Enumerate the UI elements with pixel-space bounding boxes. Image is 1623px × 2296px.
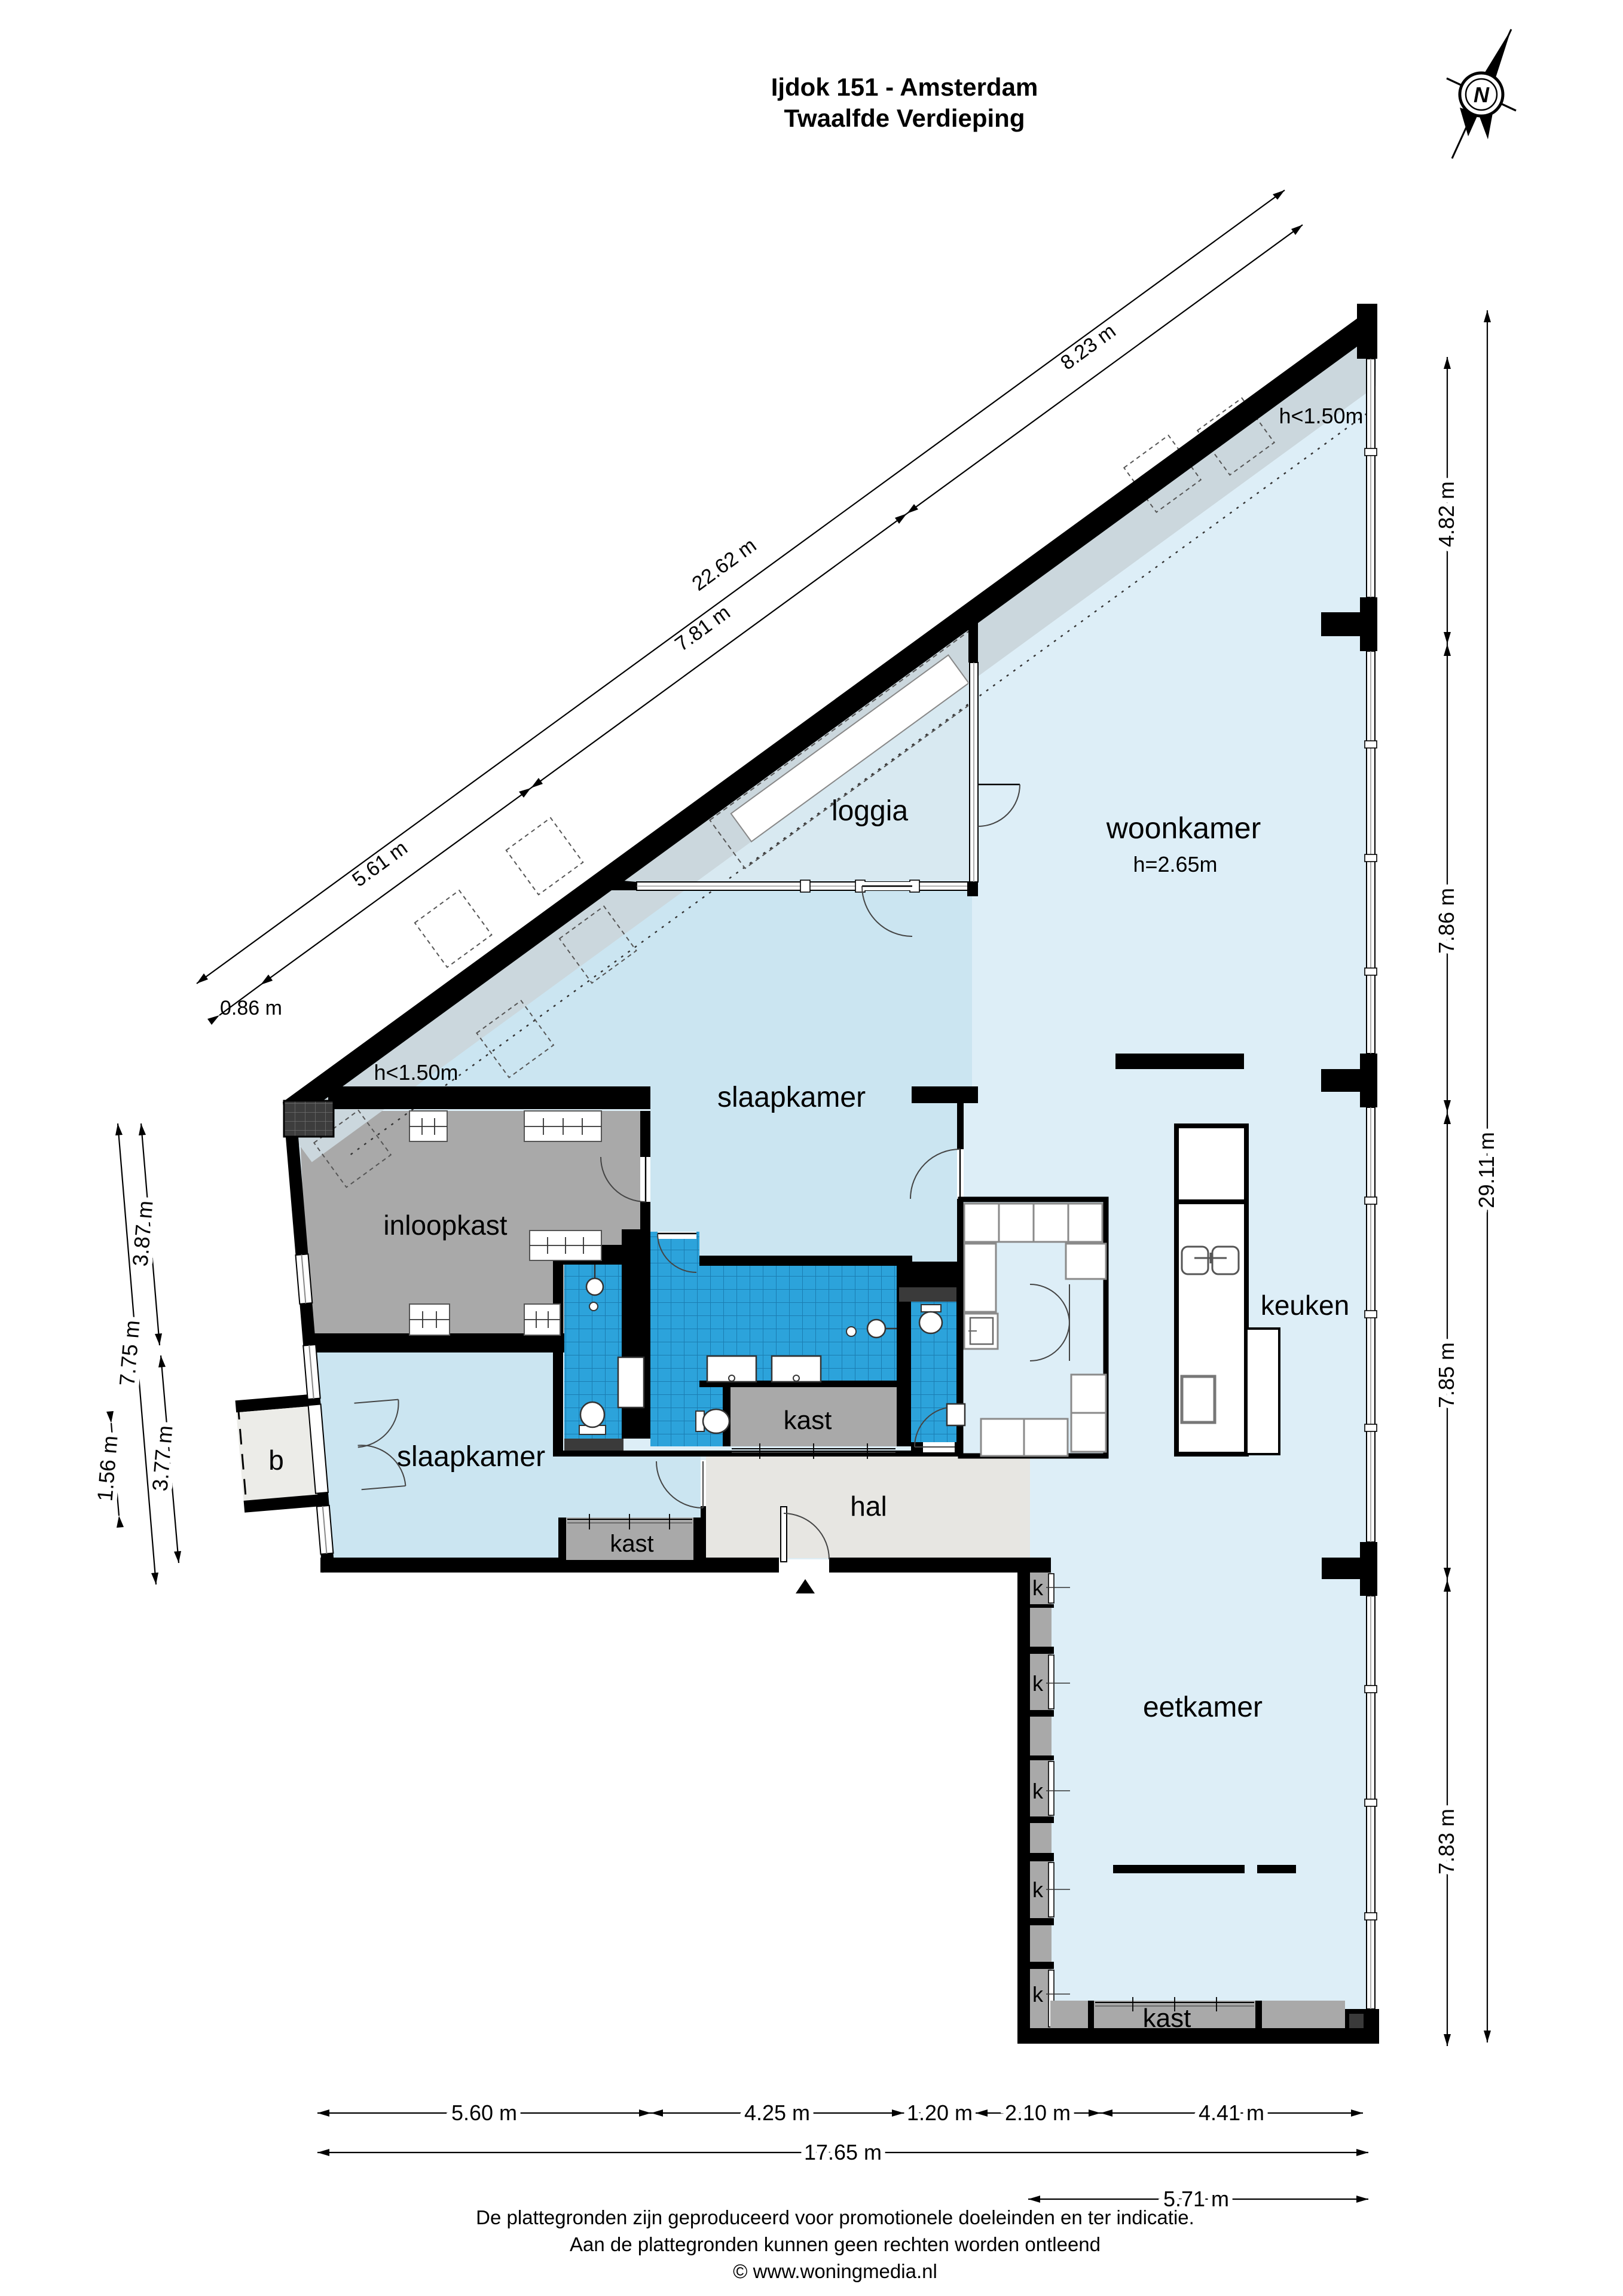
svg-text:kast: kast [610,1531,653,1557]
svg-text:k: k [1032,1982,1044,2007]
svg-text:woonkamer: woonkamer [1106,811,1261,845]
svg-text:Aan de plattegronden kunnen ge: Aan de plattegronden kunnen geen rechten… [570,2233,1101,2255]
svg-text:© www.woningmedia.nl: © www.woningmedia.nl [733,2260,937,2282]
svg-text:k: k [1032,1779,1044,1803]
svg-text:2.10 m: 2.10 m [1005,2100,1071,2125]
svg-text:1.20 m: 1.20 m [907,2100,973,2125]
svg-text:De plattegronden zijn geproduc: De plattegronden zijn geproduceerd voor … [476,2206,1194,2228]
svg-text:4.25 m: 4.25 m [744,2100,810,2125]
svg-text:17.65 m: 17.65 m [804,2140,882,2164]
svg-text:0.86 m: 0.86 m [220,997,282,1019]
svg-text:h<1.50m: h<1.50m [374,1060,458,1085]
svg-text:slaapkamer: slaapkamer [717,1082,866,1113]
svg-text:inloopkast: inloopkast [383,1210,507,1241]
svg-text:Ijdok 151 - Amsterdam: Ijdok 151 - Amsterdam [771,73,1038,101]
svg-text:hal: hal [850,1491,887,1522]
svg-text:kast: kast [1143,2004,1191,2033]
svg-text:N: N [1474,83,1490,107]
svg-text:b: b [268,1445,284,1476]
svg-text:h<1.50m: h<1.50m [1279,404,1363,428]
svg-text:4.41 m: 4.41 m [1199,2100,1264,2125]
svg-text:loggia: loggia [832,795,908,827]
svg-text:eetkamer: eetkamer [1143,1692,1263,1723]
svg-text:5.60 m: 5.60 m [451,2100,517,2125]
svg-text:29.11 m: 29.11 m [1474,1132,1499,1208]
svg-text:7.83 m: 7.83 m [1434,1809,1459,1874]
svg-text:kast: kast [784,1406,832,1435]
svg-text:slaapkamer: slaapkamer [397,1441,545,1473]
svg-text:k: k [1032,1671,1044,1696]
svg-text:k: k [1032,1576,1044,1600]
svg-text:4.82 m: 4.82 m [1434,481,1459,547]
svg-text:7.85 m: 7.85 m [1434,1342,1459,1408]
svg-text:7.86 m: 7.86 m [1434,888,1459,954]
svg-text:keuken: keuken [1261,1290,1349,1321]
svg-text:Twaalfde Verdieping: Twaalfde Verdieping [784,104,1025,132]
svg-text:k: k [1032,1877,1044,1902]
svg-text:h=2.65m: h=2.65m [1133,852,1217,877]
